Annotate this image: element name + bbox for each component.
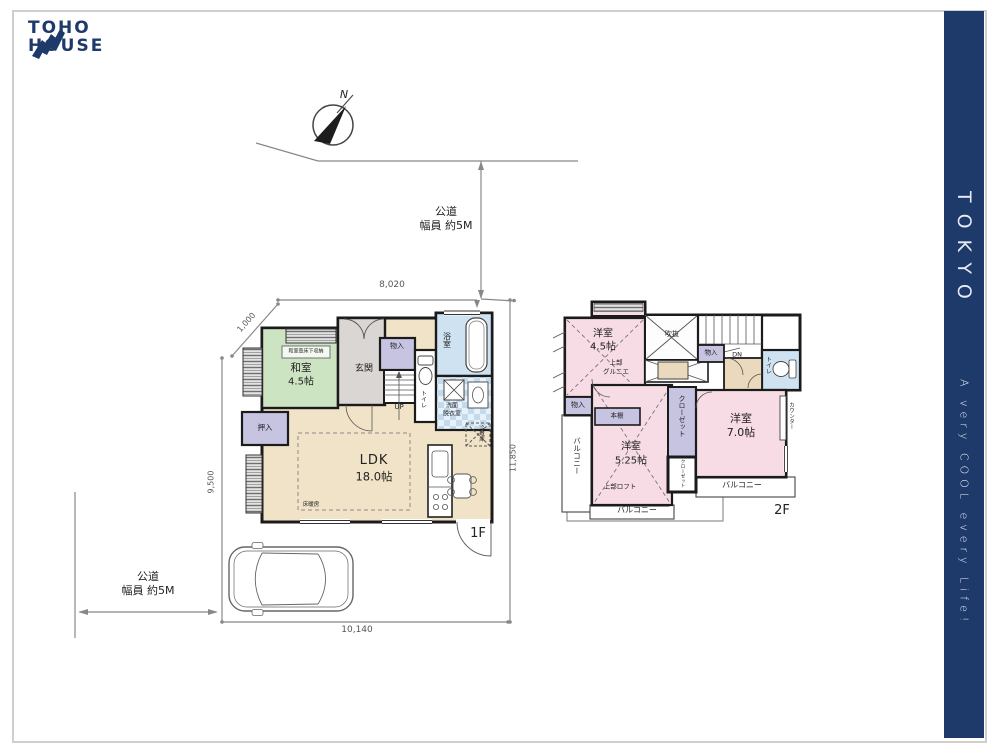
fridge-label: 冷蔵庫	[477, 425, 485, 442]
loft-note: 上部ロフト	[604, 483, 637, 490]
counter-label: カウンター	[787, 402, 795, 430]
dim-left: 9,500	[208, 471, 217, 494]
road-left-line1: 公道	[137, 571, 159, 583]
stairs-dn-label: DN	[732, 351, 742, 358]
ldk-size: 18.0帖	[355, 471, 392, 484]
storage-1f-label: 物入	[390, 343, 404, 351]
dim-right: 11,850	[510, 444, 519, 472]
bookshelf-label: 本棚	[611, 412, 624, 419]
washitsu-size: 4.5帖	[288, 377, 314, 388]
washroom-line1: 洗面	[446, 404, 458, 411]
washitsu-name: 和室	[291, 363, 312, 375]
dim-bottom: 10,140	[341, 626, 373, 636]
compass-north-label: N	[340, 89, 348, 101]
flyer-page: TOHO HOUSE TOKYO A very COOL every Life!	[0, 0, 1000, 750]
dim-top: 8,020	[379, 281, 405, 291]
north-compass	[313, 95, 353, 145]
grenier-note2: グルニエ	[603, 368, 629, 375]
washitsu-note: 和室畳床下収納	[288, 349, 323, 355]
east-room-size: 7.0帖	[727, 427, 756, 439]
void-label: 吹抜	[665, 331, 679, 339]
balcony-bottom-label: バルコニー	[617, 507, 657, 516]
toilet-1f-label: トイレ	[419, 390, 428, 408]
floorplan-drawing	[0, 0, 1000, 750]
storage-2f-top-label: 物入	[705, 349, 718, 356]
closet2-label: クローゼット	[679, 459, 686, 488]
balcony-right-label: バルコニー	[722, 482, 762, 491]
center-room-name: 洋室	[621, 442, 641, 453]
toilet-2f-label: トイレ	[764, 356, 773, 374]
grenier-note1: 上部	[610, 359, 623, 366]
west-room-size: 4.5帖	[590, 342, 616, 353]
bath-label: 浴室	[442, 332, 453, 348]
road-top-line1: 公道	[435, 206, 457, 218]
genkan-label: 玄関	[355, 365, 373, 375]
oshiire-label: 押入	[258, 424, 273, 432]
stairs-up-label: UP	[394, 404, 403, 412]
ldk-name: LDK	[360, 454, 389, 468]
balcony-left-label: バルコニー	[572, 437, 583, 475]
floor1-plan	[242, 310, 492, 557]
floor1-label: 1F	[470, 527, 486, 541]
road-left-line2: 幅員 約5M	[122, 585, 175, 597]
west-room-name: 洋室	[593, 329, 613, 340]
east-room-name: 洋室	[730, 413, 752, 425]
car-top-view	[229, 543, 353, 616]
washroom-line2: 脱衣室	[443, 412, 461, 419]
floor2-label: 2F	[774, 504, 790, 518]
storage-2f-left-label: 物入	[571, 402, 585, 410]
center-room-size: 5.25帖	[615, 456, 647, 467]
road-top-line2: 幅員 約5M	[420, 220, 473, 232]
closet1-label: クローゼット	[677, 395, 687, 437]
floor-heating-label: 床暖房	[303, 502, 320, 508]
